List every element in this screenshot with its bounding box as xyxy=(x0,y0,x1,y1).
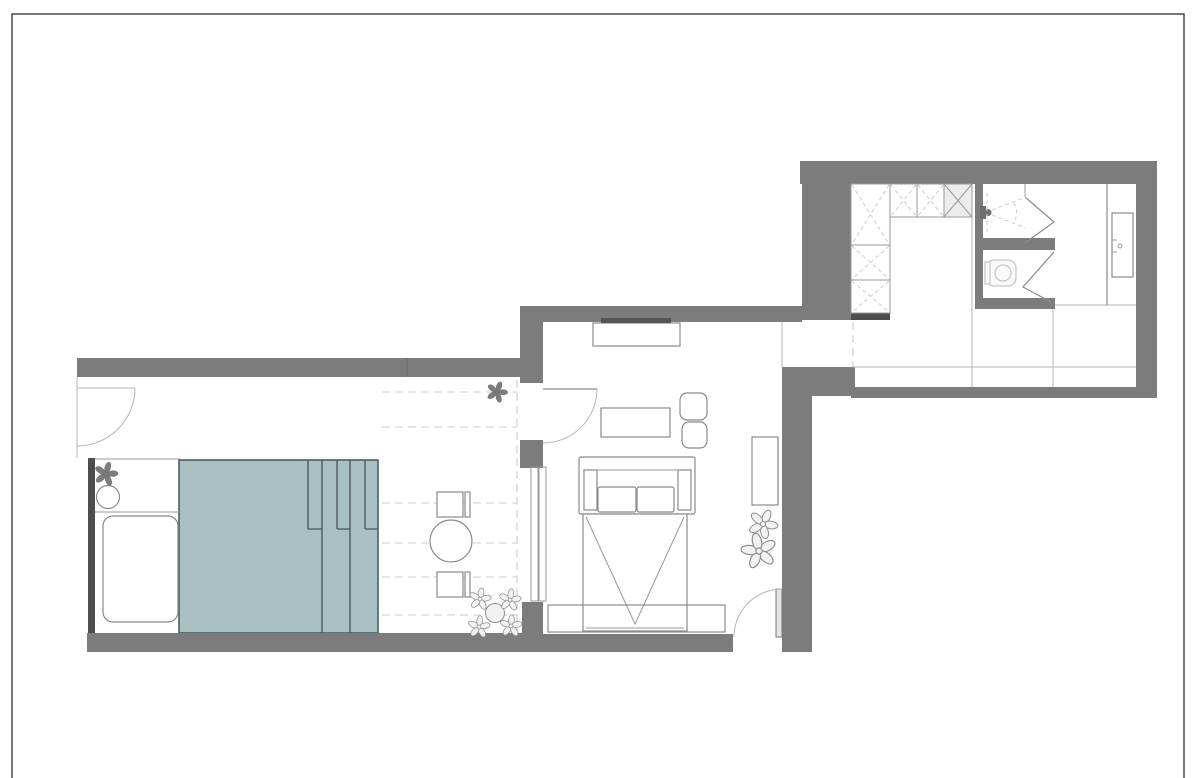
bistro-chair xyxy=(437,492,463,517)
bistro-chair xyxy=(437,572,463,597)
bathroom-vanity xyxy=(1112,213,1133,277)
bistro-chair-back xyxy=(465,492,470,517)
sofa-cushion xyxy=(637,487,674,512)
shower-cabin xyxy=(980,184,1054,243)
pouf xyxy=(680,393,707,420)
living-room-furniture xyxy=(548,318,778,632)
pouf xyxy=(682,422,707,448)
plant-icon xyxy=(743,504,783,544)
floor-plan xyxy=(0,0,1200,778)
shower-folding-door xyxy=(1025,197,1054,243)
sofa xyxy=(579,457,695,514)
bistro-chair-back xyxy=(465,572,470,597)
shaft-x-box xyxy=(944,184,972,217)
vanity-basin xyxy=(1112,213,1133,277)
wc-folding-door xyxy=(1023,252,1054,302)
tv xyxy=(601,318,671,323)
living-room-exit-door xyxy=(734,589,782,637)
window-glazing-icon xyxy=(531,467,546,601)
floor-plan-page xyxy=(0,0,1200,778)
shelf-unit xyxy=(752,437,778,505)
sofa-armrest xyxy=(678,470,691,510)
sofa-armrest xyxy=(584,470,597,510)
sideboard xyxy=(593,323,680,346)
side-table-round xyxy=(97,486,120,509)
toilet-icon xyxy=(985,260,1016,286)
wc-compartment xyxy=(985,252,1054,302)
bistro-set xyxy=(430,492,472,597)
bistro-table xyxy=(430,520,472,562)
door-swing-arc-icon xyxy=(77,388,135,446)
lounger xyxy=(103,516,178,622)
bed-rug xyxy=(583,514,687,631)
sofa-cushion xyxy=(598,487,636,512)
living-room-side-door xyxy=(543,389,597,443)
coffee-table xyxy=(601,408,670,437)
shower-head-icon xyxy=(980,193,1026,233)
walk-in-closet xyxy=(851,184,972,313)
wardrobe-dashed-x xyxy=(852,185,943,312)
plant-icon xyxy=(91,459,121,488)
pool xyxy=(179,460,378,633)
door-swing-arc-icon xyxy=(734,589,782,637)
door-swing-arc-icon xyxy=(543,389,597,443)
plant-icon xyxy=(735,526,784,576)
terrace-door xyxy=(77,388,135,446)
door-leaf xyxy=(776,589,782,637)
